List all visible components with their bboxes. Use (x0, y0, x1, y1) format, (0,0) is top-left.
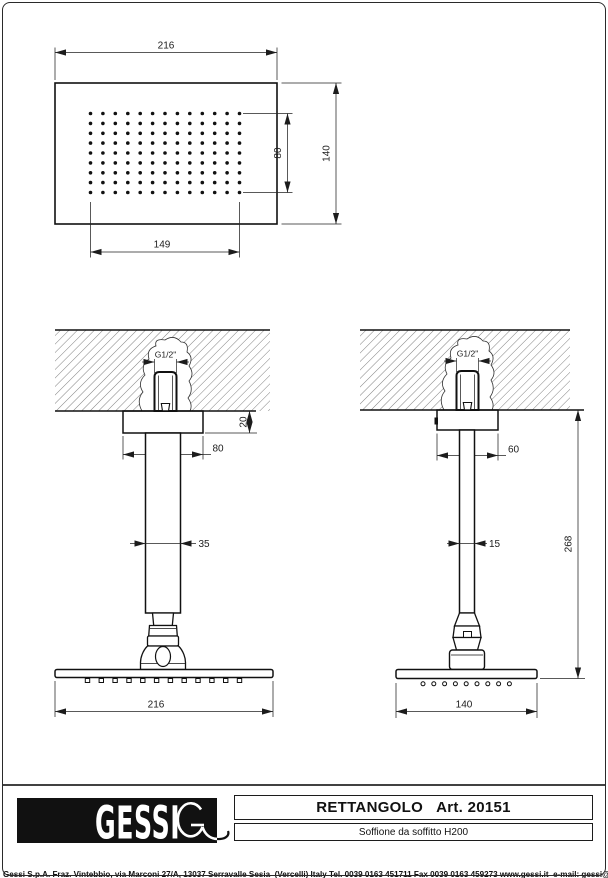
top-view: 216 140 80 149 (55, 41, 342, 258)
technical-drawing: 216 140 80 149 (0, 0, 608, 784)
dim-label-head-width: 140 (456, 700, 473, 711)
shower-arm (146, 433, 181, 613)
dim-total-height (540, 410, 585, 679)
nozzle-row-left (85, 679, 241, 683)
title-block: RETTANGOLO Art. 20151 (234, 795, 593, 820)
datasheet-page: 216 140 80 149 (0, 0, 608, 878)
product-subtitle: Soffione da soffitto H200 (359, 827, 468, 838)
dim-label-thread: G1/2" (457, 349, 478, 359)
dim-label-flange-width: 80 (212, 444, 224, 455)
dim-label-thread: G1/2" (155, 350, 176, 360)
dim-label-total-height: 268 (564, 535, 575, 552)
company-footer: Gessi S.p.A. Fraz. Vintebbio, via Marcon… (3, 847, 605, 878)
article-number: Art. 20151 (436, 799, 511, 816)
showerhead-slab (55, 670, 273, 678)
dim-label-flange-width: 60 (508, 445, 520, 456)
dim-label-face-width: 216 (158, 41, 175, 52)
dim-label-arm-width: 15 (489, 539, 501, 550)
thread-stub (155, 372, 177, 411)
dim-label-arm-width: 35 (198, 539, 210, 550)
dim-label-nozzle-field-height: 80 (273, 147, 284, 159)
ceiling-flange (123, 411, 203, 433)
front-view-right: G1/2" 60 15 (360, 330, 585, 718)
nozzle-row-right (421, 682, 511, 686)
ball-joint (141, 613, 186, 670)
dim-label-nozzle-field-width: 149 (154, 240, 171, 251)
shower-arm (460, 430, 475, 613)
dim-label-face-height: 140 (322, 145, 333, 162)
dim-face-width (55, 48, 277, 81)
showerhead-slab (396, 670, 537, 679)
logo-wordmark: GESSI (95, 797, 180, 844)
front-view-left: G1/2" 20 80 35 (55, 330, 273, 717)
dim-face-height (282, 83, 342, 224)
product-name: RETTANGOLO (316, 799, 423, 816)
footer-separator (3, 784, 605, 786)
thread-stub (457, 371, 479, 410)
dim-label-head-width: 216 (148, 700, 165, 711)
dim-label-flange-height: 20 (239, 416, 250, 428)
subtitle-block: Soffione da soffitto H200 (234, 823, 593, 841)
flange-notch (435, 418, 439, 425)
ball-joint (450, 613, 485, 670)
gessi-logo: GESSI (17, 797, 233, 844)
company-address: Gessi S.p.A. Fraz. Vintebbio, via Marcon… (3, 869, 605, 878)
ceiling-flange (437, 410, 498, 430)
